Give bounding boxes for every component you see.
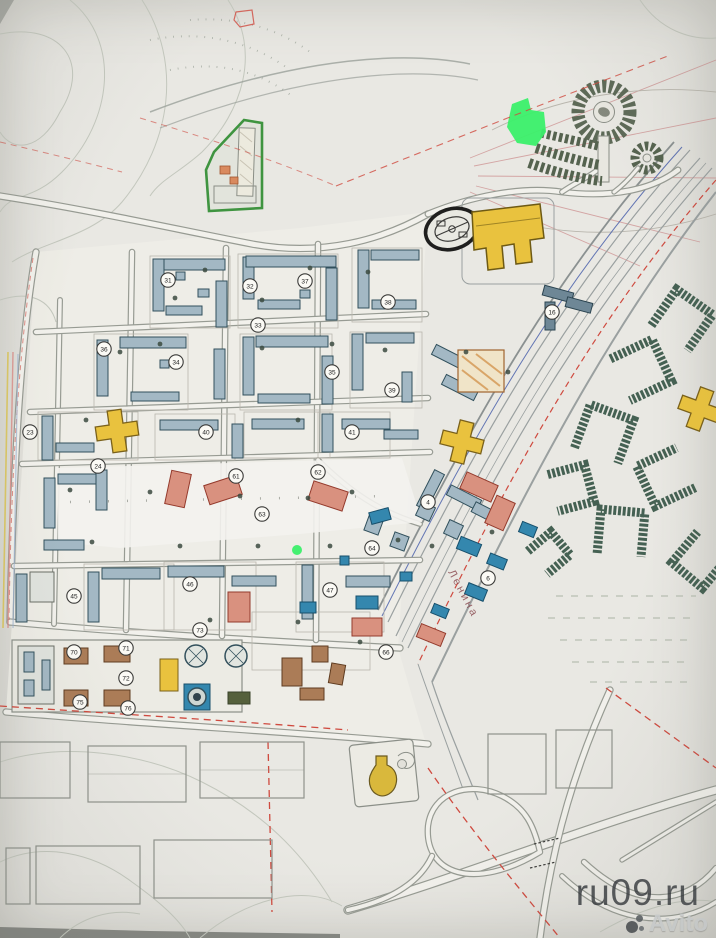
block-number: 70 [70, 649, 78, 656]
block-number: 63 [258, 511, 266, 518]
tree [118, 350, 123, 355]
building [346, 576, 390, 587]
block-number: 36 [100, 346, 108, 353]
building [300, 602, 316, 613]
tree [366, 270, 371, 275]
building [44, 478, 55, 528]
block-number: 4 [426, 499, 430, 506]
building [258, 394, 310, 403]
building [214, 349, 225, 399]
building [24, 680, 34, 696]
block-number: 75 [76, 699, 84, 706]
building [198, 289, 209, 297]
building [88, 572, 99, 622]
building [328, 663, 345, 685]
building [282, 658, 302, 686]
building [416, 624, 445, 647]
block-number: 16 [548, 309, 556, 316]
block-number: 73 [196, 627, 204, 634]
building [384, 430, 418, 439]
building [16, 574, 27, 622]
future-lots [0, 730, 612, 904]
block-number: 37 [301, 278, 309, 285]
building [160, 360, 169, 368]
watermark-site-url: ru09.ru [576, 872, 700, 914]
tree [238, 494, 243, 499]
tree [464, 350, 469, 355]
avito-logo-icon [626, 913, 646, 935]
building [228, 692, 250, 704]
watermark-brand-label: Avito [649, 910, 708, 938]
tree [208, 618, 213, 623]
building [256, 336, 328, 347]
building [216, 281, 227, 327]
block-number: 38 [384, 299, 392, 306]
tree [260, 298, 265, 303]
block-number: 72 [122, 675, 130, 682]
building [120, 337, 186, 348]
building [42, 416, 53, 460]
perimeter-block-building [610, 339, 671, 400]
block-number: 71 [122, 645, 130, 652]
scanned-city-master-plan: 3132373836343335392324404161626364464546… [0, 0, 716, 938]
building [366, 333, 414, 343]
photo-edge-bottom [0, 927, 340, 938]
green-marker-small [292, 545, 302, 555]
building [30, 572, 54, 602]
tree [256, 544, 261, 549]
tree [178, 544, 183, 549]
tree [350, 490, 355, 495]
school-cross-east [673, 382, 716, 436]
building [322, 414, 333, 452]
block-number: 45 [70, 593, 78, 600]
tree [358, 640, 363, 645]
building [340, 556, 349, 565]
building [176, 272, 185, 280]
building [42, 660, 50, 690]
building [519, 521, 538, 537]
block-number: 34 [172, 359, 180, 366]
building [258, 300, 300, 309]
red-pentagon-mark [234, 10, 254, 27]
building [44, 540, 84, 550]
building [352, 334, 363, 390]
tree [90, 540, 95, 545]
building [96, 470, 107, 510]
block-number: 40 [202, 429, 210, 436]
building [131, 392, 179, 401]
building [24, 652, 34, 672]
tree [158, 342, 163, 347]
tree [84, 418, 89, 423]
block-number: 35 [328, 369, 336, 376]
perimeter-block-building [575, 405, 634, 464]
school-cross-center [437, 417, 488, 468]
building [487, 553, 508, 570]
building [402, 372, 412, 402]
block-number: 23 [26, 429, 34, 436]
building [243, 337, 254, 395]
building [352, 618, 382, 636]
block-number: 41 [348, 429, 356, 436]
tree [260, 346, 265, 351]
tree [203, 268, 208, 273]
building [232, 576, 276, 586]
building [456, 536, 481, 556]
block-number: 64 [368, 545, 376, 552]
building [58, 474, 98, 484]
tree [173, 296, 178, 301]
block-number: 24 [94, 463, 102, 470]
building [300, 290, 310, 298]
building [102, 568, 160, 579]
perimeter-block-building [548, 465, 595, 512]
perimeter-block-building [672, 532, 716, 588]
building [160, 659, 178, 691]
city-plan-map: 3132373836343335392324404161626364464546… [0, 0, 716, 938]
perimeter-block-building [528, 532, 570, 574]
building [358, 250, 369, 308]
block-number: 76 [124, 705, 132, 712]
building [312, 646, 328, 662]
building [246, 256, 336, 267]
tree [328, 544, 333, 549]
building [56, 443, 94, 452]
block-number: 33 [254, 322, 262, 329]
tree [308, 266, 313, 271]
block-number: 39 [388, 387, 396, 394]
building [400, 572, 412, 581]
building [232, 424, 243, 458]
tree [306, 496, 311, 501]
school-complex-yellow [472, 204, 544, 270]
block-number: 66 [382, 649, 390, 656]
block-number: 47 [326, 587, 334, 594]
photo-edge-corner [0, 0, 14, 24]
perimeter-block-building [637, 448, 695, 506]
tree [396, 538, 401, 543]
block-number: 32 [246, 283, 254, 290]
tree [296, 418, 301, 423]
block-number: 62 [314, 469, 322, 476]
building [228, 592, 250, 622]
building [356, 596, 378, 609]
building [166, 306, 202, 315]
keyhole-stem [598, 136, 609, 182]
tree [296, 620, 301, 625]
block-number: 6 [486, 575, 490, 582]
block-number: 31 [164, 277, 172, 284]
tree [430, 544, 435, 549]
building [444, 520, 464, 540]
tree [506, 370, 511, 375]
block-number: 46 [186, 581, 194, 588]
building [326, 268, 337, 320]
tree [490, 530, 495, 535]
building [300, 688, 324, 700]
building [322, 356, 333, 404]
tree [68, 488, 73, 493]
perimeter-block-building [651, 289, 712, 350]
tree [330, 342, 335, 347]
tree [383, 348, 388, 353]
block-number: 61 [232, 473, 240, 480]
tree [148, 490, 153, 495]
watermark-brand: Avito [626, 910, 708, 938]
building [168, 566, 224, 577]
building [371, 250, 419, 260]
perimeter-block-building [597, 509, 645, 557]
